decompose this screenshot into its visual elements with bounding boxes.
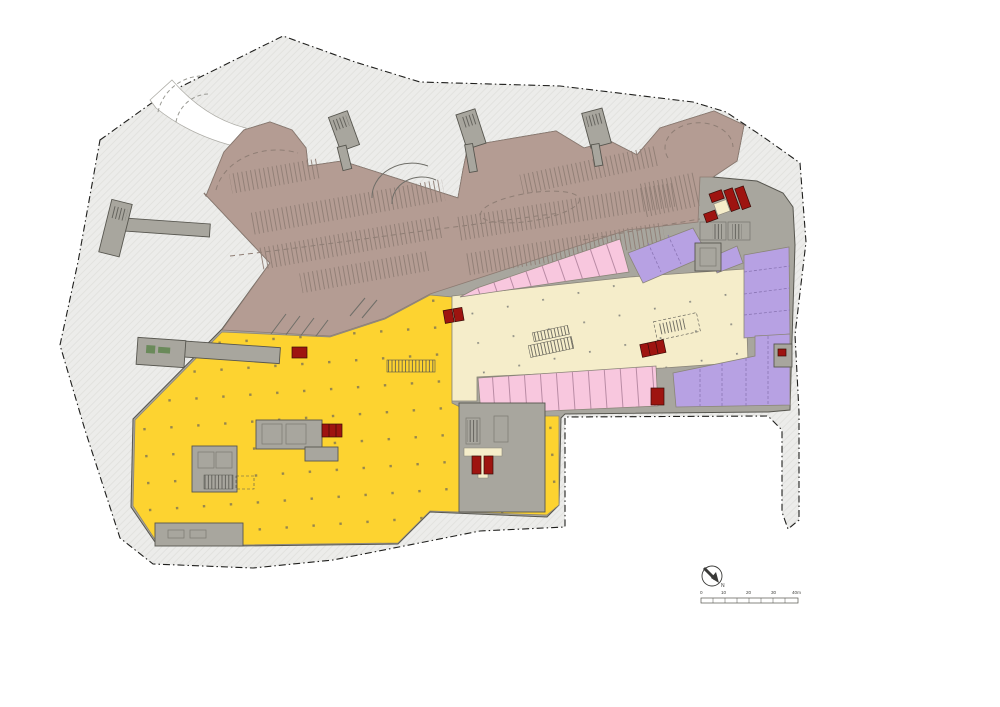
stair-red-right-edge xyxy=(778,349,786,356)
core-yellow-west-stair xyxy=(204,475,233,489)
stair-red-band xyxy=(292,347,307,358)
scale-bar-rule xyxy=(701,598,798,603)
elevator-core-main-2 xyxy=(484,456,493,474)
scale-label-20: 20 xyxy=(746,590,752,595)
floor-plan-page: N 0 10 20 30 40m xyxy=(0,0,1000,707)
escalator-pink-lower xyxy=(651,388,664,405)
floor-plan-svg: N 0 10 20 30 40m xyxy=(0,0,1000,707)
core-main-stair xyxy=(467,420,479,442)
core-yellow-mid-tail xyxy=(305,447,338,461)
escalator-strip-yellow xyxy=(387,360,435,372)
north-arrow-label: N xyxy=(721,583,725,589)
scale-label-30: 30 xyxy=(771,590,777,595)
entry-stair-2 xyxy=(732,224,742,239)
scale-label-0: 0 xyxy=(700,590,703,595)
scale-label-10: 10 xyxy=(721,590,727,595)
retail-purple-east xyxy=(744,247,790,338)
scale-bar: 0 10 20 30 40m xyxy=(700,590,801,603)
core-corridor-east xyxy=(695,243,721,271)
escalator-core-mid xyxy=(322,424,342,437)
core-yellow-mid xyxy=(256,420,322,449)
scale-label-40m: 40m xyxy=(792,590,801,595)
elevator-core-main-1 xyxy=(472,456,481,474)
north-arrow: N xyxy=(702,566,725,589)
entry-stair-1 xyxy=(712,224,722,239)
